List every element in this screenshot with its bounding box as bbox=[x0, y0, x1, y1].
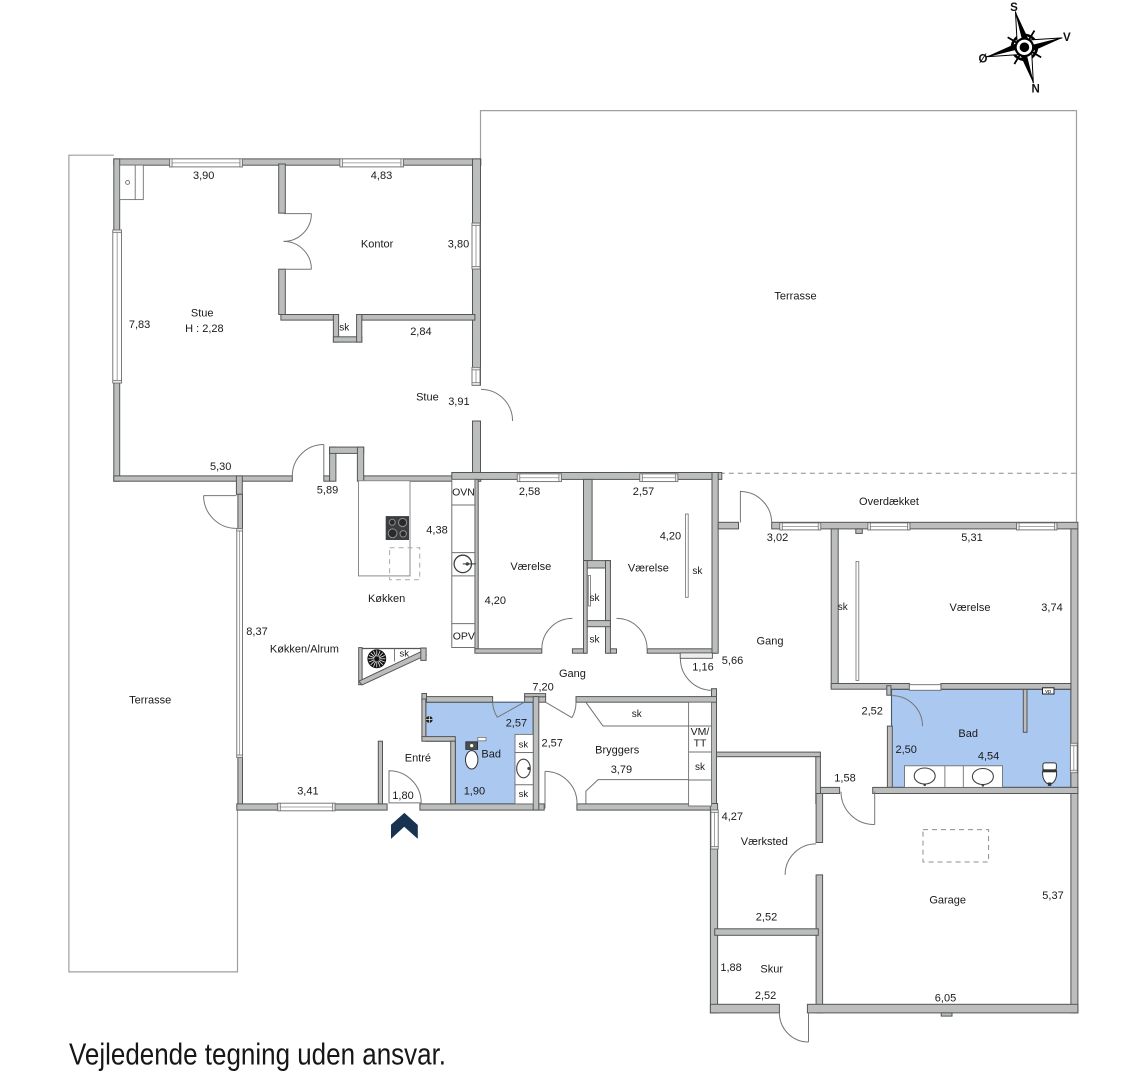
svg-text:Terrasse: Terrasse bbox=[774, 291, 816, 303]
svg-text:3,79: 3,79 bbox=[611, 764, 632, 776]
svg-text:Entré: Entré bbox=[405, 752, 431, 764]
svg-text:Overdækket: Overdækket bbox=[859, 496, 919, 508]
svg-text:TT: TT bbox=[694, 738, 707, 750]
svg-text:sk: sk bbox=[692, 566, 703, 577]
svg-text:3,90: 3,90 bbox=[193, 170, 214, 182]
svg-text:1,58: 1,58 bbox=[834, 773, 855, 785]
svg-text:1,80: 1,80 bbox=[392, 790, 413, 802]
svg-text:sk: sk bbox=[695, 762, 706, 773]
svg-text:Køkken/Alrum: Køkken/Alrum bbox=[270, 644, 339, 656]
svg-text:4,20: 4,20 bbox=[660, 531, 681, 543]
svg-text:sk: sk bbox=[519, 789, 529, 800]
svg-text:2,57: 2,57 bbox=[633, 486, 654, 498]
svg-text:2,57: 2,57 bbox=[506, 718, 527, 730]
svg-text:V: V bbox=[1063, 32, 1071, 44]
svg-text:3,74: 3,74 bbox=[1041, 602, 1062, 614]
svg-text:5,66: 5,66 bbox=[722, 655, 743, 667]
svg-text:N: N bbox=[1031, 84, 1039, 96]
svg-text:Stue: Stue bbox=[416, 392, 439, 404]
svg-text:2,52: 2,52 bbox=[756, 911, 777, 923]
svg-text:1,88: 1,88 bbox=[720, 962, 741, 974]
svg-text:4,83: 4,83 bbox=[371, 170, 392, 182]
svg-text:3,02: 3,02 bbox=[767, 532, 788, 544]
svg-text:4,54: 4,54 bbox=[978, 751, 999, 763]
svg-text:OPV: OPV bbox=[453, 631, 475, 643]
svg-text:4,20: 4,20 bbox=[485, 595, 506, 607]
svg-text:2,52: 2,52 bbox=[861, 706, 882, 718]
svg-text:3,80: 3,80 bbox=[448, 239, 469, 251]
svg-text:H : 2,28: H : 2,28 bbox=[185, 323, 224, 335]
svg-text:8,37: 8,37 bbox=[246, 626, 267, 638]
svg-text:sk: sk bbox=[519, 740, 529, 751]
svg-text:2,84: 2,84 bbox=[410, 326, 431, 338]
svg-text:2,50: 2,50 bbox=[895, 744, 916, 756]
svg-text:4,27: 4,27 bbox=[722, 811, 743, 823]
svg-text:2,58: 2,58 bbox=[519, 486, 540, 498]
svg-text:3,91: 3,91 bbox=[448, 396, 469, 408]
svg-text:VM/: VM/ bbox=[691, 726, 710, 738]
svg-text:3,41: 3,41 bbox=[297, 786, 318, 798]
svg-text:sk: sk bbox=[838, 602, 849, 613]
svg-text:Ø: Ø bbox=[979, 54, 988, 66]
svg-text:vp: vp bbox=[1045, 689, 1051, 695]
svg-text:Skur: Skur bbox=[760, 964, 783, 976]
svg-text:Gang: Gang bbox=[559, 668, 586, 680]
svg-text:Stue: Stue bbox=[191, 308, 214, 320]
svg-text:5,31: 5,31 bbox=[961, 532, 982, 544]
svg-text:sk: sk bbox=[399, 649, 409, 660]
svg-text:4,38: 4,38 bbox=[426, 525, 447, 537]
svg-text:Vejledende tegning uden ansvar: Vejledende tegning uden ansvar. bbox=[69, 1038, 446, 1072]
svg-text:7,83: 7,83 bbox=[129, 319, 150, 331]
svg-text:sk: sk bbox=[339, 323, 350, 334]
svg-text:Værelse: Værelse bbox=[628, 563, 669, 575]
svg-text:1,90: 1,90 bbox=[464, 786, 485, 798]
svg-text:Bad: Bad bbox=[958, 728, 978, 740]
svg-text:Værelse: Værelse bbox=[950, 602, 991, 614]
svg-text:5,30: 5,30 bbox=[210, 461, 231, 473]
svg-text:Køkken: Køkken bbox=[368, 593, 405, 605]
svg-text:Kontor: Kontor bbox=[361, 239, 394, 251]
svg-text:2,52: 2,52 bbox=[755, 990, 776, 1002]
svg-text:2,57: 2,57 bbox=[541, 737, 562, 749]
svg-text:Terrasse: Terrasse bbox=[129, 695, 171, 707]
svg-text:5,89: 5,89 bbox=[317, 485, 338, 497]
svg-text:6,05: 6,05 bbox=[935, 992, 956, 1004]
svg-text:S: S bbox=[1010, 2, 1018, 14]
svg-text:7,20: 7,20 bbox=[532, 681, 553, 693]
svg-text:Gang: Gang bbox=[757, 635, 784, 647]
svg-text:Bad: Bad bbox=[481, 749, 501, 761]
svg-text:Garage: Garage bbox=[929, 894, 966, 906]
svg-text:OVN: OVN bbox=[452, 487, 475, 499]
svg-text:Værksted: Værksted bbox=[741, 836, 788, 848]
svg-text:1,16: 1,16 bbox=[692, 662, 713, 674]
svg-text:sk: sk bbox=[590, 593, 601, 604]
svg-text:Bryggers: Bryggers bbox=[595, 744, 640, 756]
svg-text:Værelse: Værelse bbox=[510, 561, 551, 573]
svg-text:sk: sk bbox=[632, 709, 643, 720]
svg-text:5,37: 5,37 bbox=[1042, 890, 1063, 902]
svg-text:sk: sk bbox=[590, 635, 601, 646]
